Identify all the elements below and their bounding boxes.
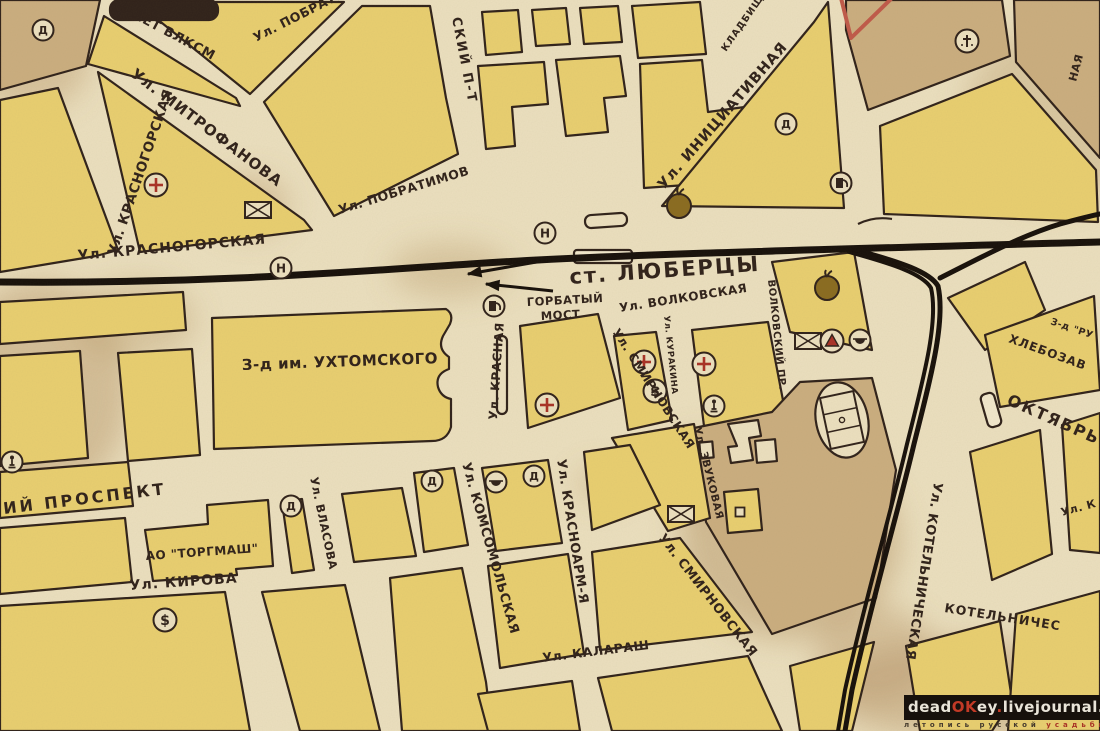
watermark-url: deadOKey.livejournal.com xyxy=(904,695,1100,720)
photo-grain xyxy=(0,0,1100,731)
watermark-subtitle: летопись русской усадьбы xyxy=(904,720,1100,731)
watermark: deadOKey.livejournal.com летопись русско… xyxy=(904,695,1100,731)
map-photo: ДННД$ДДД$0-ЛЕТ ВЛКСМУл. ПОБРАТИМОВУл. МИ… xyxy=(0,0,1100,731)
city-map-image: ДННД$ДДД$0-ЛЕТ ВЛКСМУл. ПОБРАТИМОВУл. МИ… xyxy=(0,0,1100,731)
